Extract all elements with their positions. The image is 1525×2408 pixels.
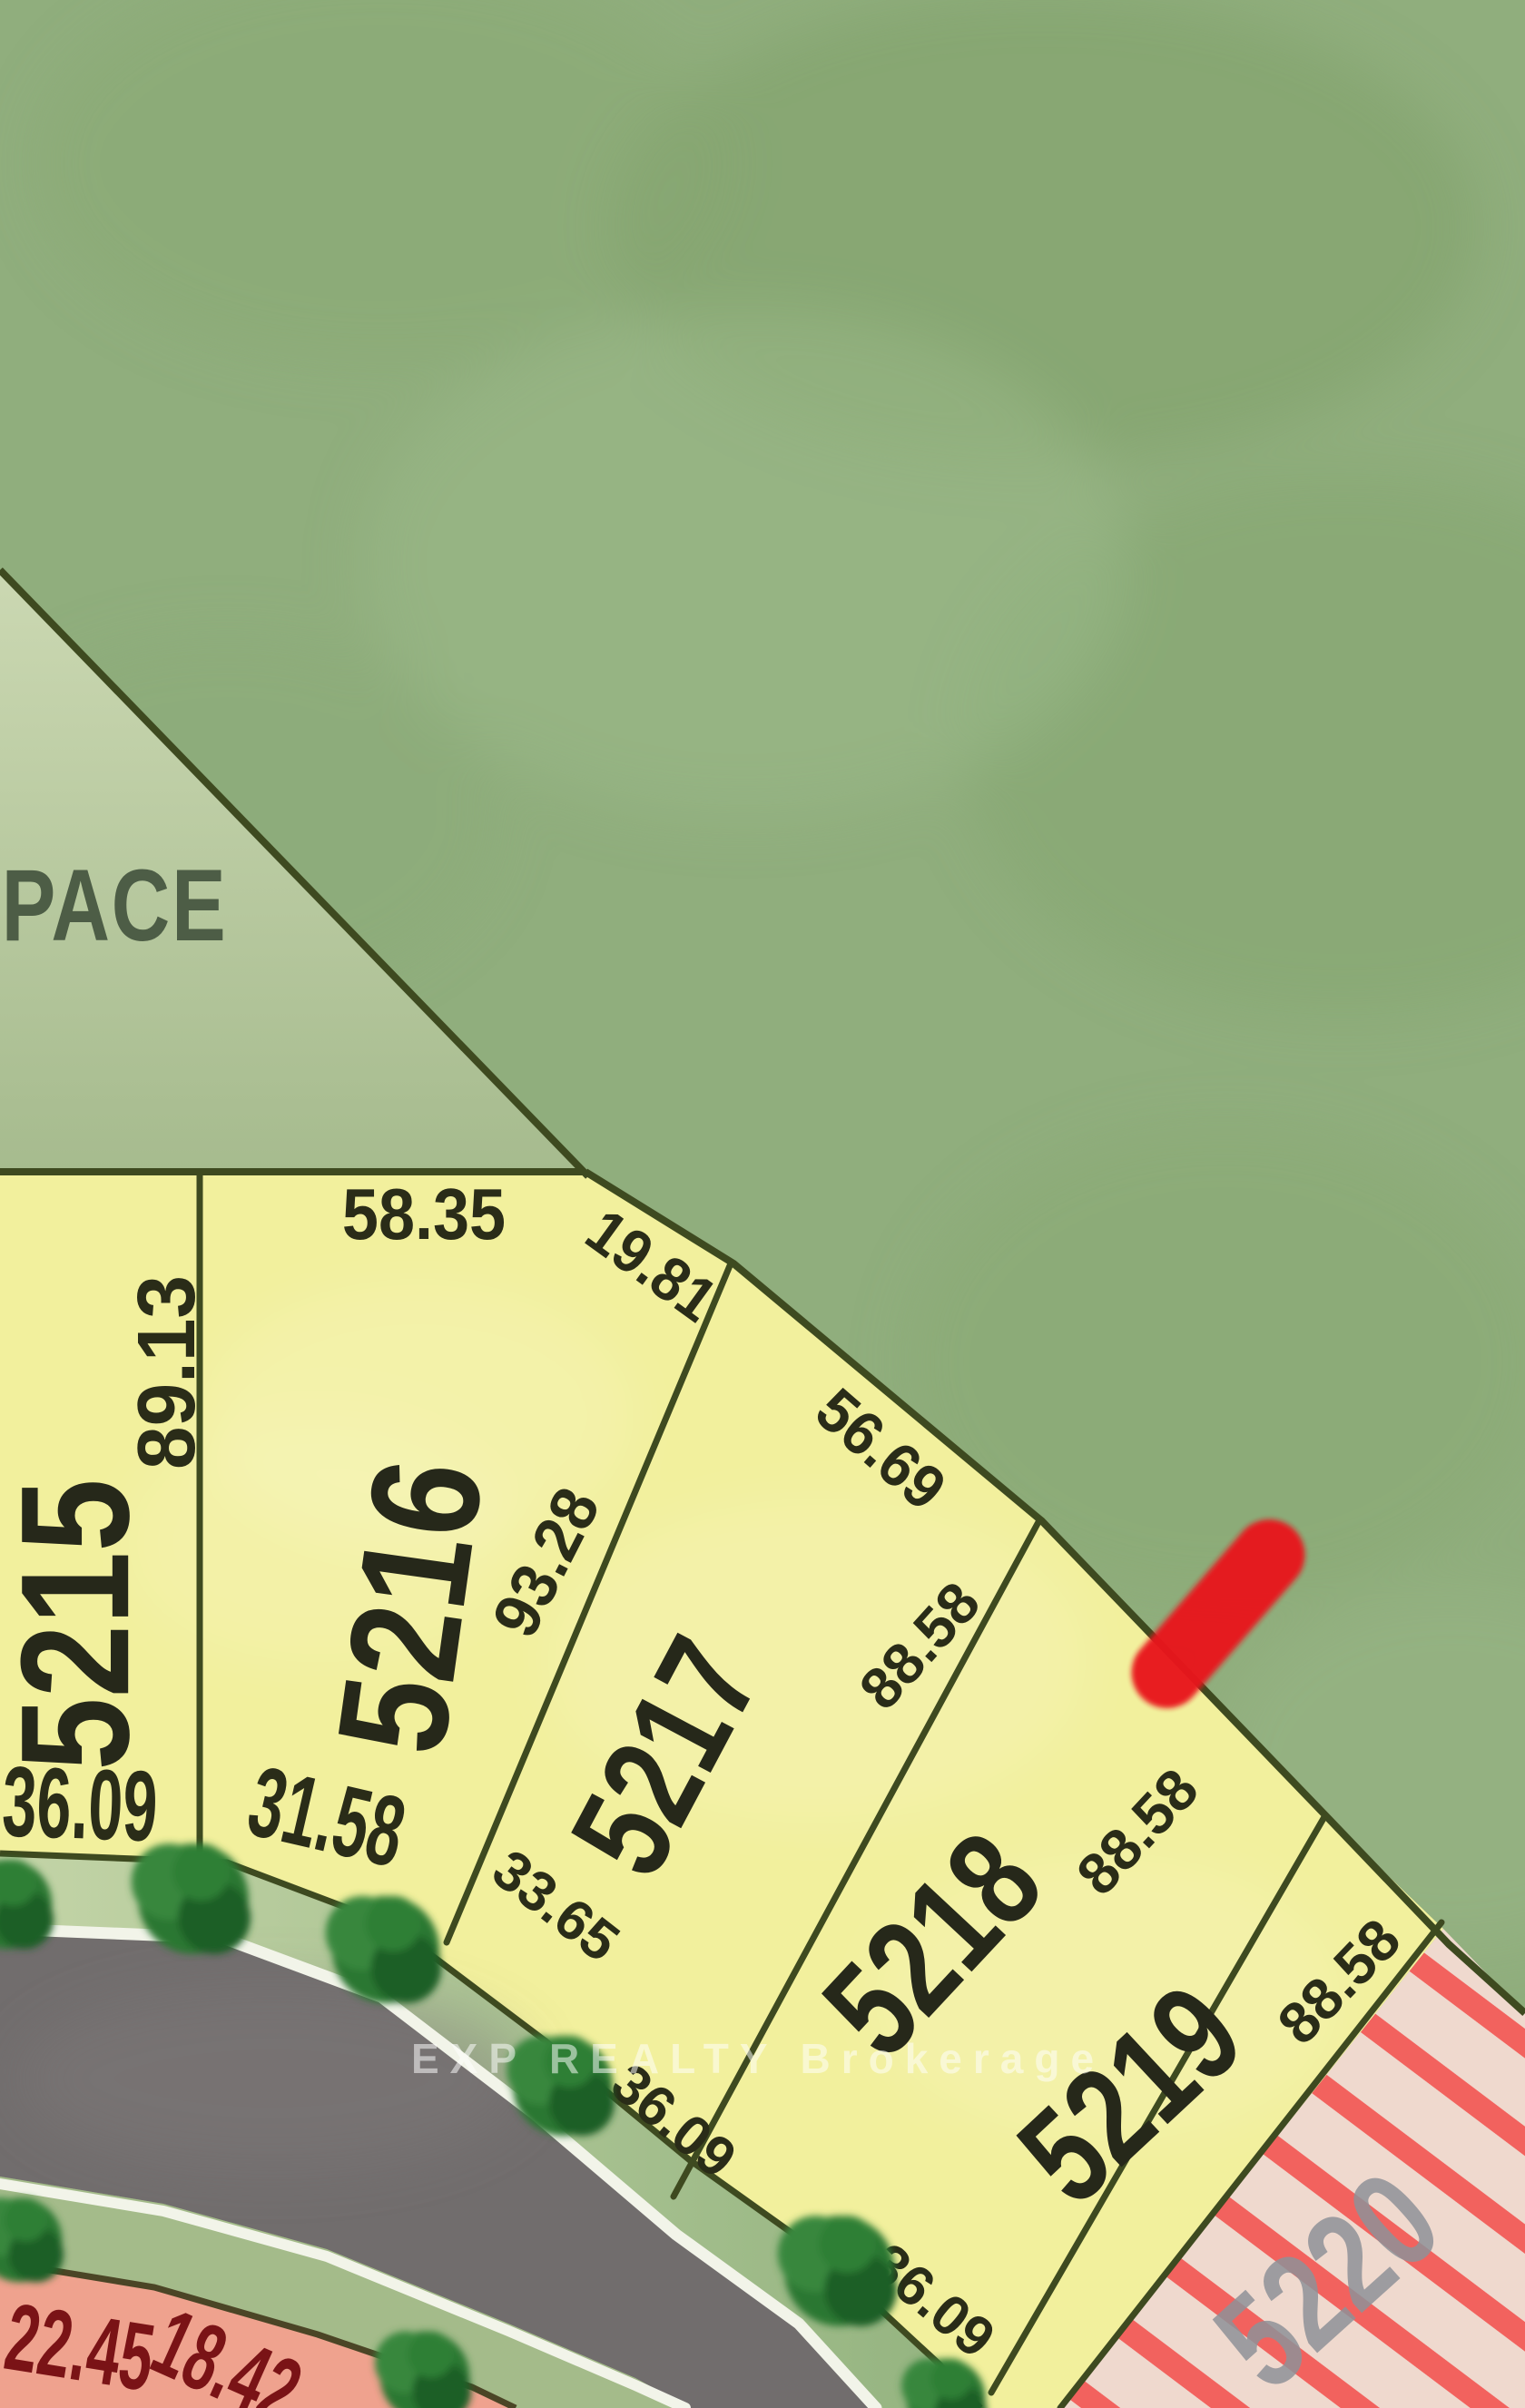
watermark-text: EXP REALTY Brokerage — [411, 2035, 1105, 2082]
open-space-label: PACE — [2, 850, 228, 963]
dim-5215-frontage: 36.09 — [1, 1746, 160, 1863]
dim-street-22-45: 22.45 — [0, 2283, 162, 2408]
dim-5216-top: 58.35 — [342, 1174, 506, 1254]
site-plan-map: PACE 5215 5216 5217 5218 5219 5220 89.13… — [0, 0, 1525, 2408]
site-plan-screenshot: PACE 5215 5216 5217 5218 5219 5220 89.13… — [0, 0, 1525, 2408]
dim-5215-side: 89.13 — [121, 1275, 212, 1469]
lot-5215-number: 5215 — [0, 1479, 162, 1770]
